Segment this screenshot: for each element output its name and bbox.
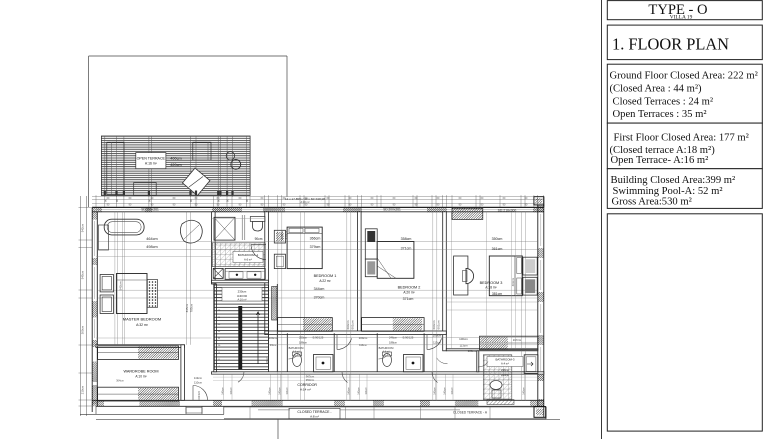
- svg-text:CLOSED TERRACE - A: CLOSED TERRACE - A: [453, 411, 488, 415]
- svg-text:344cm: 344cm: [314, 287, 325, 291]
- svg-text:A:4 m²: A:4 m²: [382, 351, 389, 354]
- svg-text:SD:200x261: SD:200x261: [383, 207, 401, 211]
- svg-text:A:14 m²: A:14 m²: [300, 387, 311, 391]
- svg-text:371cm: 371cm: [401, 246, 412, 250]
- svg-text:113cm: 113cm: [433, 341, 442, 345]
- svg-text:694cm: 694cm: [346, 320, 350, 330]
- svg-text:110cm: 110cm: [286, 387, 289, 394]
- svg-text:A:16 m²: A:16 m²: [145, 162, 158, 166]
- svg-text:A:22 m²: A:22 m²: [319, 279, 330, 283]
- svg-text:13 x 17.85% / 13 x 60=408,08: 13 x 17.85% / 13 x 60=408,08: [285, 197, 325, 201]
- svg-text:379cm: 379cm: [310, 245, 321, 249]
- svg-text:BEDROOM 2: BEDROOM 2: [398, 286, 421, 290]
- svg-text:119cm: 119cm: [194, 376, 203, 380]
- svg-text:110cm: 110cm: [365, 387, 368, 394]
- svg-text:498cm: 498cm: [146, 245, 157, 249]
- svg-text:358cm: 358cm: [401, 237, 412, 241]
- svg-text:MASTER BEDROOM: MASTER BEDROOM: [123, 317, 161, 322]
- svg-text:A:18 m²: A:18 m²: [485, 286, 496, 290]
- svg-text:A:16 m²: A:16 m²: [300, 200, 309, 204]
- svg-text:BATHROOM: BATHROOM: [379, 346, 394, 350]
- svg-text:A:20 m²: A:20 m²: [403, 290, 414, 294]
- svg-text:160cm: 160cm: [266, 356, 269, 364]
- svg-text:145cm: 145cm: [434, 387, 437, 395]
- svg-text:661cm: 661cm: [351, 320, 355, 330]
- svg-text:A:4 m²: A:4 m²: [292, 351, 299, 354]
- svg-text:BATHROOM: BATHROOM: [289, 346, 304, 350]
- svg-text:A:6 m²: A:6 m²: [244, 258, 252, 262]
- svg-text:Ground Floor Closed Area: 222: Ground Floor Closed Area: 222 m²: [610, 70, 758, 81]
- svg-text:BEDROOM 1: BEDROOM 1: [314, 274, 337, 278]
- svg-text:464cm: 464cm: [146, 237, 157, 241]
- svg-text:100cm: 100cm: [468, 349, 477, 353]
- svg-text:145cm: 145cm: [348, 387, 351, 395]
- svg-text:953cm: 953cm: [306, 378, 315, 382]
- svg-text:First Floor Closed Area: 177 m: First Floor Closed Area: 177 m²: [614, 133, 749, 144]
- svg-text:145cm: 145cm: [444, 387, 447, 395]
- svg-text:A:4 m²: A:4 m²: [501, 362, 509, 366]
- svg-text:545cm: 545cm: [81, 270, 85, 279]
- svg-text:145cm: 145cm: [222, 387, 225, 395]
- svg-text:Building Closed Area:399 m²: Building Closed Area:399 m²: [611, 175, 736, 186]
- svg-text:420cm: 420cm: [170, 163, 181, 167]
- svg-text:542cm: 542cm: [119, 281, 123, 291]
- svg-text:A:16 m²: A:16 m²: [237, 298, 246, 302]
- svg-text:145cm: 145cm: [279, 387, 282, 395]
- svg-text:100cm: 100cm: [359, 336, 368, 340]
- svg-text:SD:200x261: SD:200x261: [141, 207, 159, 211]
- svg-text:188cm: 188cm: [299, 341, 308, 345]
- svg-text:167cm: 167cm: [513, 338, 522, 342]
- svg-text:350cm: 350cm: [492, 237, 503, 241]
- svg-text:D:80/220: D:80/220: [198, 390, 201, 400]
- svg-text:110cm: 110cm: [194, 381, 203, 385]
- svg-text:370cm: 370cm: [314, 295, 325, 299]
- svg-text:145cm: 145cm: [269, 387, 272, 395]
- svg-text:100cm: 100cm: [433, 334, 442, 338]
- svg-text:364cm: 364cm: [116, 379, 124, 383]
- svg-text:13cm: 13cm: [270, 343, 277, 347]
- svg-text:Closed Terraces : 24 m²: Closed Terraces : 24 m²: [613, 97, 714, 108]
- svg-text:90cm: 90cm: [255, 237, 263, 241]
- svg-text:381cm: 381cm: [492, 292, 502, 296]
- svg-text:113cm: 113cm: [359, 343, 368, 347]
- svg-text:542cm: 542cm: [81, 223, 85, 232]
- svg-text:220cm: 220cm: [501, 373, 510, 377]
- svg-text:1. FLOOR PLAN: 1. FLOOR PLAN: [612, 34, 729, 53]
- svg-text:145cm: 145cm: [523, 387, 526, 395]
- svg-text:661cm: 661cm: [437, 320, 441, 330]
- svg-text:WARDROBE ROOM: WARDROBE ROOM: [123, 370, 158, 374]
- svg-text:785cm: 785cm: [190, 303, 194, 312]
- svg-text:CORRIDOR: CORRIDOR: [297, 383, 317, 387]
- svg-text:230cm: 230cm: [238, 290, 247, 294]
- svg-text:A:32 m²: A:32 m²: [136, 323, 149, 327]
- svg-text:BATHROOM-3: BATHROOM-3: [495, 358, 514, 362]
- svg-text:361cm: 361cm: [492, 247, 503, 251]
- svg-text:SD:216x300: SD:216x300: [498, 209, 517, 213]
- svg-text:110cm: 110cm: [230, 387, 233, 394]
- svg-text:300cm: 300cm: [81, 325, 85, 334]
- svg-text:Gross Area:530 m²: Gross Area:530 m²: [612, 196, 692, 207]
- svg-text:366cm: 366cm: [310, 236, 321, 240]
- svg-text:BEDROOM 3: BEDROOM 3: [480, 281, 503, 285]
- svg-text:Open Terraces : 35 m²: Open Terraces : 35 m²: [613, 109, 707, 120]
- svg-text:400cm: 400cm: [170, 157, 181, 161]
- svg-text:100cm: 100cm: [269, 336, 278, 340]
- svg-text:145cm: 145cm: [358, 387, 361, 395]
- svg-text:210cm: 210cm: [81, 385, 85, 394]
- svg-text:OPEN TERRACE: OPEN TERRACE: [137, 156, 166, 160]
- svg-text:A:10 m²: A:10 m²: [135, 375, 146, 379]
- svg-text:3x30=90: 3x30=90: [237, 294, 248, 298]
- svg-text:835cm: 835cm: [185, 303, 189, 312]
- svg-text:113cm: 113cm: [460, 344, 469, 348]
- svg-text:188cm: 188cm: [389, 341, 398, 345]
- svg-text:230cm: 230cm: [501, 368, 510, 372]
- svg-text:VILLA 19: VILLA 19: [670, 15, 693, 21]
- svg-text:Open Terrace- A:16 m²: Open Terrace- A:16 m²: [611, 155, 709, 166]
- svg-text:371cm: 371cm: [403, 297, 414, 301]
- svg-text:110cm: 110cm: [451, 387, 454, 394]
- svg-text:694cm: 694cm: [432, 320, 436, 330]
- svg-text:(Closed Area : 44 m²): (Closed Area : 44 m²): [610, 84, 702, 95]
- svg-text:A:8 m²: A:8 m²: [310, 414, 319, 418]
